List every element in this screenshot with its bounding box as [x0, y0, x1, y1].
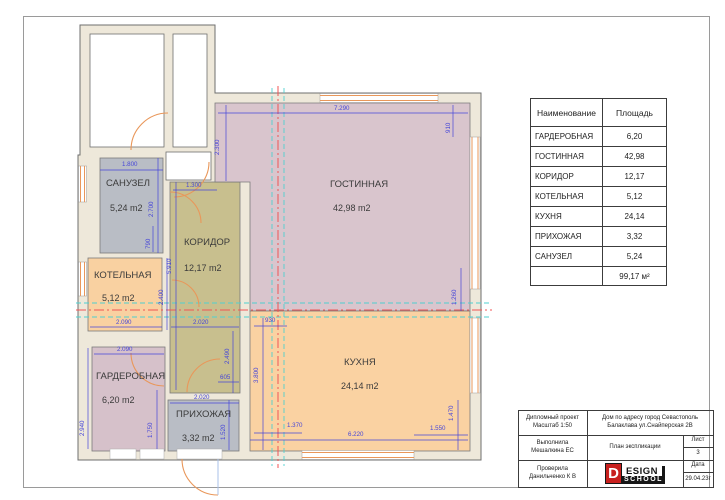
room-name-label: ГАРДЕРОБНАЯ	[96, 371, 165, 382]
sheet-number: 3	[684, 448, 713, 460]
room-area-cell: 24,14	[603, 207, 667, 227]
room-area-label: 12,17 m2	[184, 263, 222, 273]
wall-cavity	[90, 34, 164, 147]
wall-opening	[140, 449, 164, 459]
author-role: Выполнила	[537, 440, 569, 448]
room-area-cell: 12,17	[603, 167, 667, 187]
project-cell: Дипломный проект Масштаб 1:50	[518, 410, 588, 436]
checker-name: Данильченко К В	[529, 474, 576, 482]
dim-text: 790	[145, 238, 152, 249]
dim-text: 3.800	[253, 367, 260, 383]
dim-text: 2.490	[224, 348, 231, 364]
doc-title-cell: План экспликации	[587, 435, 684, 461]
room-name-cell: КОТЕЛЬНАЯ	[531, 187, 603, 207]
dim-text: 2.090	[116, 319, 132, 326]
room-area-label: 6,20 m2	[102, 395, 135, 405]
room-name-cell: КОРИДОР	[531, 167, 603, 187]
room-name-label: КОРИДОР	[184, 237, 230, 248]
room-area-cell: 5,12	[603, 187, 667, 207]
window	[79, 262, 87, 296]
dim-text: 7.290	[334, 105, 350, 112]
door-arc	[182, 459, 218, 495]
sheet-label: Лист	[684, 436, 713, 448]
room-name-label: КОТЕЛЬНАЯ	[94, 270, 152, 281]
dim-text: 930	[265, 317, 276, 324]
room-area-cell: 42,98	[603, 147, 667, 167]
address-line2: Балаклава ул.Снайперская 2В	[607, 423, 692, 431]
room-name-cell: ГОСТИННАЯ	[531, 147, 603, 167]
date-cell: Дата 29.04.23г	[683, 460, 714, 488]
table-row: ПРИХОЖАЯ3,32	[531, 227, 667, 247]
dim-text: 2.300	[214, 139, 221, 155]
room-name-cell: КУХНЯ	[531, 207, 603, 227]
table-row: КУХНЯ24,14	[531, 207, 667, 227]
author-cell: Выполнила Мешалкина ЕС	[518, 435, 588, 461]
dim-text: 1.800	[122, 161, 138, 168]
total-empty-cell	[531, 267, 603, 286]
project-name: Дипломный проект	[526, 415, 579, 423]
logo-d-icon: D	[605, 463, 622, 485]
room-area-label: 3,32 m2	[182, 433, 215, 443]
room-prihozhaya	[168, 400, 239, 451]
column-header-area: Площадь	[603, 99, 667, 127]
dim-text: 1.370	[287, 422, 303, 429]
window	[302, 451, 414, 460]
room-area-label: 42,98 m2	[333, 203, 371, 213]
room-area-label: 5,24 m2	[110, 203, 143, 213]
dim-text: 2.090	[117, 346, 133, 353]
dim-text: 2.700	[148, 201, 155, 217]
logo-cell: D ESIGN SCHOOL	[587, 460, 684, 488]
checker-role: Проверила	[537, 466, 568, 474]
room-area-cell: 5,24	[603, 247, 667, 267]
room-area-cell: 3,32	[603, 227, 667, 247]
table-row: КОТЕЛЬНАЯ5,12	[531, 187, 667, 207]
window	[320, 94, 438, 103]
address-cell: Дом по адресу город Севастополь Балаклав…	[587, 410, 714, 436]
room-name-cell: ГАРДЕРОБНАЯ	[531, 127, 603, 147]
design-school-logo: D ESIGN SCHOOL	[605, 463, 665, 485]
room-area-cell: 6,20	[603, 127, 667, 147]
table-total-row: 99,17 м²	[531, 267, 667, 286]
dim-text: 2.020	[194, 394, 210, 401]
date-value: 29.04.23г	[684, 473, 713, 487]
dim-text: 2.400	[158, 289, 165, 305]
room-name-cell: САНУЗЕЛ	[531, 247, 603, 267]
room-name-label: САНУЗЕЛ	[106, 178, 150, 189]
room-name-label: ПРИХОЖАЯ	[176, 409, 231, 420]
area-table: Наименование Площадь ГАРДЕРОБНАЯ6,20ГОСТ…	[530, 98, 667, 286]
total-area-value: 99,17 м²	[603, 267, 667, 286]
table-header-row: Наименование Площадь	[531, 99, 667, 127]
dim-text: 1.300	[186, 182, 202, 189]
wall-opening	[110, 449, 136, 459]
window	[79, 166, 87, 202]
dim-text: 1.520	[220, 424, 227, 440]
dim-text: 1.470	[448, 405, 455, 421]
dim-text: 605	[220, 374, 231, 381]
project-scale: Масштаб 1:50	[533, 423, 572, 431]
room-name-label: ГОСТИННАЯ	[330, 179, 388, 190]
author-name: Мешалкина ЕС	[531, 448, 574, 456]
date-label: Дата	[684, 461, 713, 473]
table-row: КОРИДОР12,17	[531, 167, 667, 187]
room-area-label: 24,14 m2	[341, 381, 379, 391]
drawing-sheet: 7.2909101.8002.7007901.3002.3005.9102.40…	[0, 0, 725, 500]
dim-text: 6.220	[348, 431, 364, 438]
table-row: САНУЗЕЛ5,24	[531, 247, 667, 267]
checker-cell: Проверила Данильченко К В	[518, 460, 588, 488]
room-name-label: КУХНЯ	[344, 357, 376, 368]
dim-text: 2.020	[193, 319, 209, 326]
wall-cavity	[166, 152, 211, 180]
table-row: ГОСТИННАЯ42,98	[531, 147, 667, 167]
address-line1: Дом по адресу город Севастополь	[602, 415, 698, 423]
wall-cavity	[173, 34, 207, 147]
logo-school-text: SCHOOL	[622, 476, 665, 484]
title-block: Дипломный проект Масштаб 1:50 Дом по адр…	[518, 410, 713, 487]
room-name-cell: ПРИХОЖАЯ	[531, 227, 603, 247]
dim-text: 910	[445, 122, 452, 133]
table-row: ГАРДЕРОБНАЯ6,20	[531, 127, 667, 147]
dim-text: 2.940	[79, 420, 86, 436]
sheet-cell: Лист 3	[683, 435, 714, 461]
wall-opening	[177, 449, 222, 459]
logo-esign-text: ESIGN	[622, 466, 665, 477]
column-header-name: Наименование	[531, 99, 603, 127]
doc-title: План экспликации	[609, 444, 660, 452]
room-area-label: 5,12 m2	[102, 293, 135, 303]
dim-text: 1.750	[147, 422, 154, 438]
dim-text: 1.260	[451, 289, 458, 305]
dim-text: 1.550	[430, 425, 446, 432]
